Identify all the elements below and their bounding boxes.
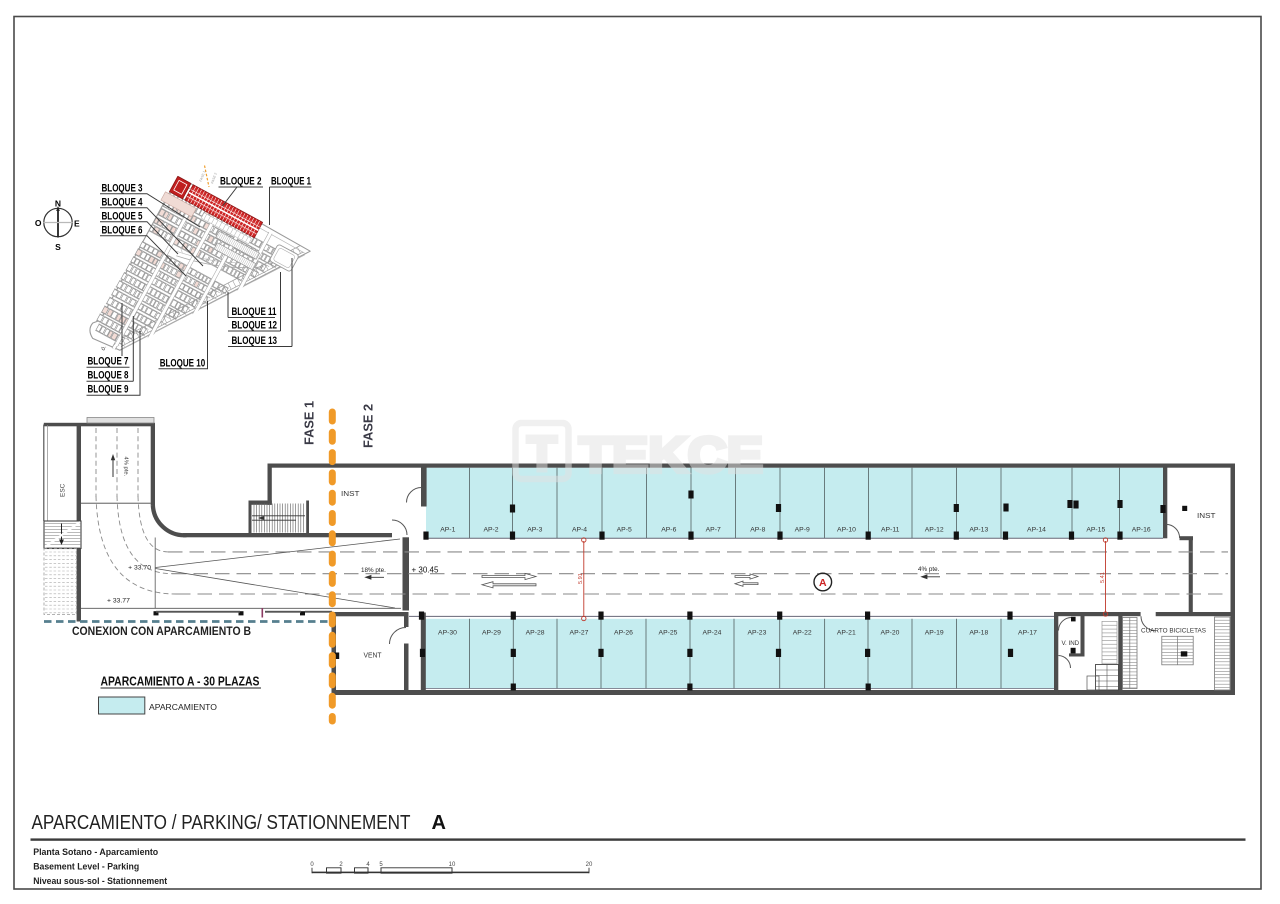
svg-text:AP-4: AP-4 <box>572 527 587 534</box>
svg-text:E: E <box>74 219 80 229</box>
svg-text:10: 10 <box>449 862 456 868</box>
svg-text:4% pte.: 4% pte. <box>123 457 129 477</box>
svg-text:AP-15: AP-15 <box>1086 527 1105 534</box>
svg-text:AP-29: AP-29 <box>482 630 501 637</box>
svg-text:AP-28: AP-28 <box>526 630 545 637</box>
svg-text:APARCAMIENTO A - 30 PLAZAS: APARCAMIENTO A - 30 PLAZAS <box>101 675 260 689</box>
svg-text:V. IND: V. IND <box>1062 640 1080 647</box>
svg-text:VENT: VENT <box>364 650 382 659</box>
svg-text:BLOQUE 4: BLOQUE 4 <box>102 197 144 209</box>
svg-text:AP-21: AP-21 <box>837 630 856 637</box>
svg-text:5.41: 5.41 <box>1100 572 1106 583</box>
svg-text:BLOQUE 6: BLOQUE 6 <box>102 225 143 237</box>
svg-text:AP-25: AP-25 <box>659 630 678 637</box>
svg-text:AP-16: AP-16 <box>1132 527 1151 534</box>
svg-text:BLOQUE 12: BLOQUE 12 <box>232 319 278 331</box>
svg-text:BLOQUE 7: BLOQUE 7 <box>88 356 129 368</box>
svg-text:AP-26: AP-26 <box>614 630 633 637</box>
svg-text:AP-1: AP-1 <box>440 527 455 534</box>
svg-text:AP-17: AP-17 <box>1018 630 1037 637</box>
svg-text:18% pte.: 18% pte. <box>361 567 386 574</box>
svg-text:FASE 2: FASE 2 <box>210 172 218 184</box>
svg-text:BLOQUE 3: BLOQUE 3 <box>102 183 143 195</box>
svg-text:AP-11: AP-11 <box>881 527 900 534</box>
svg-text:BLOQUE 2: BLOQUE 2 <box>220 176 262 188</box>
svg-text:Planta Sotano - Aparcamiento: Planta Sotano - Aparcamiento <box>33 846 158 857</box>
svg-text:BLOQUE 8: BLOQUE 8 <box>88 370 129 382</box>
svg-text:BLOQUE 5: BLOQUE 5 <box>102 211 143 223</box>
svg-text:AP-14: AP-14 <box>1027 527 1046 534</box>
svg-text:AP-22: AP-22 <box>793 630 812 637</box>
svg-text:5.91: 5.91 <box>578 573 584 584</box>
svg-text:S: S <box>55 242 61 252</box>
svg-text:CONEXION CON APARCAMIENTO B: CONEXION CON APARCAMIENTO B <box>72 626 251 638</box>
svg-text:BLOQUE 11: BLOQUE 11 <box>232 306 277 318</box>
svg-text:N: N <box>55 199 61 209</box>
svg-text:+ 30.45: + 30.45 <box>412 566 439 575</box>
svg-text:APARCAMIENTO / PARKING/ STATIO: APARCAMIENTO / PARKING/ STATIONNEMENT <box>32 812 411 834</box>
svg-text:AP-20: AP-20 <box>881 630 900 637</box>
svg-text:TEKCE: TEKCE <box>579 427 763 483</box>
svg-text:FASE 2: FASE 2 <box>361 404 376 448</box>
svg-text:T: T <box>527 428 557 482</box>
svg-text:AP-23: AP-23 <box>747 630 766 637</box>
svg-text:APARCAMIENTO: APARCAMIENTO <box>149 702 217 712</box>
svg-text:BLOQUE 1: BLOQUE 1 <box>271 176 311 188</box>
svg-text:5: 5 <box>379 862 383 868</box>
svg-text:INST: INST <box>341 489 360 498</box>
svg-text:AP-8: AP-8 <box>750 527 765 534</box>
svg-text:+ 33.70: + 33.70 <box>128 565 151 572</box>
svg-text:BLOQUE 10: BLOQUE 10 <box>160 357 206 369</box>
svg-text:AP-27: AP-27 <box>570 630 589 637</box>
svg-text:Niveau sous-sol - Stationnemen: Niveau sous-sol - Stationnement <box>33 875 167 886</box>
svg-text:AP-18: AP-18 <box>969 630 988 637</box>
svg-text:AP-7: AP-7 <box>706 527 721 534</box>
svg-text:Basement Level - Parking: Basement Level - Parking <box>33 861 139 872</box>
svg-text:AP-19: AP-19 <box>925 630 944 637</box>
svg-text:ó.: ó. <box>100 344 108 352</box>
svg-text:BLOQUE 9: BLOQUE 9 <box>88 384 129 396</box>
svg-text:4: 4 <box>366 862 370 868</box>
svg-text:FASE 1: FASE 1 <box>199 170 207 182</box>
svg-text:4% pte.: 4% pte. <box>918 566 940 573</box>
svg-text:AP-10: AP-10 <box>837 527 856 534</box>
svg-text:AP-30: AP-30 <box>438 630 457 637</box>
svg-text:+ 33.77: + 33.77 <box>107 598 130 605</box>
svg-text:AP-9: AP-9 <box>795 527 810 534</box>
svg-text:AP-12: AP-12 <box>925 527 944 534</box>
svg-text:INST: INST <box>1197 511 1216 520</box>
svg-text:AP-24: AP-24 <box>703 630 722 637</box>
svg-text:A: A <box>432 812 446 834</box>
svg-text:AP-6: AP-6 <box>661 527 676 534</box>
svg-text:AP-13: AP-13 <box>969 527 988 534</box>
svg-text:20: 20 <box>586 862 593 868</box>
svg-text:BLOQUE 13: BLOQUE 13 <box>232 335 278 347</box>
svg-text:2: 2 <box>339 862 343 868</box>
svg-text:AP-3: AP-3 <box>527 527 542 534</box>
svg-text:A: A <box>819 577 827 589</box>
svg-text:CUARTO BICICLETAS: CUARTO BICICLETAS <box>1141 628 1206 635</box>
svg-text:AP-2: AP-2 <box>483 527 498 534</box>
svg-text:FASE 1: FASE 1 <box>302 401 317 445</box>
svg-text:O: O <box>35 218 42 228</box>
svg-text:ESC: ESC <box>60 483 67 497</box>
svg-text:AP-5: AP-5 <box>617 527 632 534</box>
svg-text:0: 0 <box>310 862 314 868</box>
